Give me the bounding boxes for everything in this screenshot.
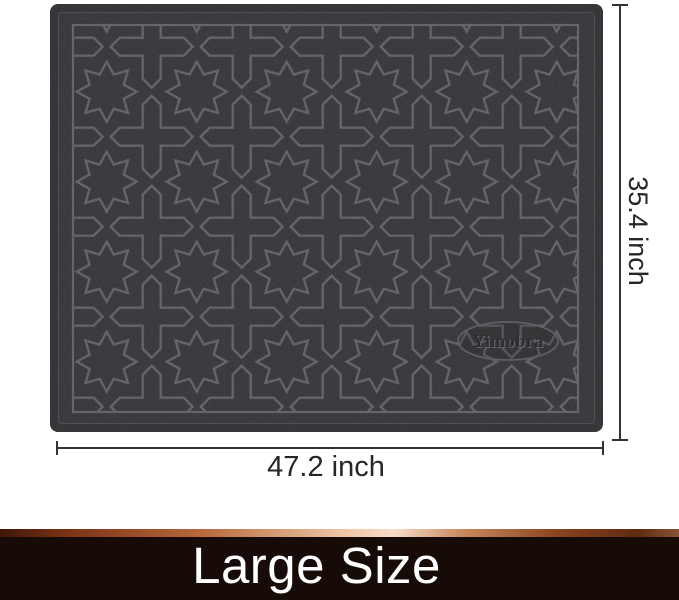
width-dimension: 47.2 inch (57, 441, 603, 483)
width-dimension-label: 47.2 inch (267, 451, 385, 483)
doormat: Yimobra Yimobra (50, 4, 603, 432)
height-dimension-label: 35.4 inch (623, 176, 653, 286)
banner-accent-strip (0, 529, 679, 537)
height-dimension: 35.4 inch (612, 5, 653, 440)
product-image: Yimobra Yimobra 47.2 inch 35.4 inch Larg… (0, 0, 679, 600)
banner-body: Large Size (0, 537, 679, 600)
doormat-figure: Yimobra Yimobra 47.2 inch 35.4 inch (0, 0, 679, 530)
size-banner: Large Size (0, 529, 679, 600)
doormat-texture (50, 4, 603, 432)
banner-label: Large Size (192, 540, 441, 591)
